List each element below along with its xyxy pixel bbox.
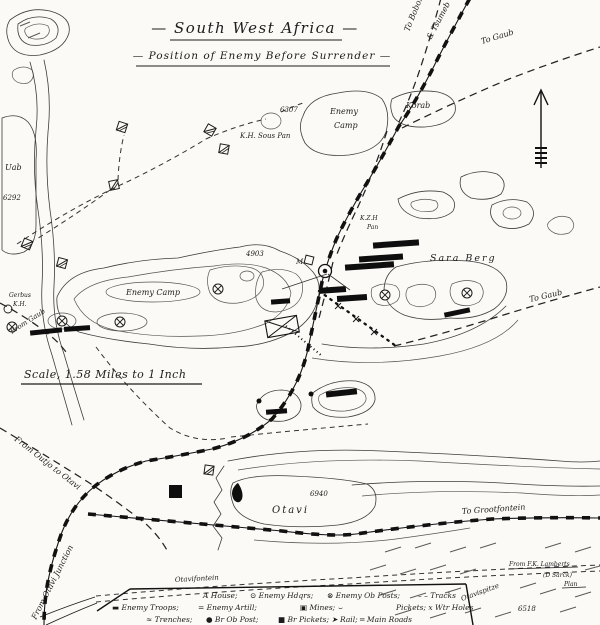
- military-symbols: [4, 121, 472, 498]
- house-icon: [56, 257, 67, 268]
- route-from-outjo: From Outjo to Otavi: [12, 434, 83, 492]
- route-tsumeb: & Tsumeb: [425, 0, 452, 41]
- credit-line2: (D Sarck): [543, 572, 573, 579]
- label-elev-6518: 6518: [518, 605, 536, 613]
- label-sous-pan: K.H. Sous Pan: [239, 132, 291, 140]
- label-enemy-camp-n2: Camp: [334, 121, 358, 130]
- enemy-obpost-icon: [213, 284, 223, 294]
- scale-note: Scale, 1.58 Miles to 1 Inch: [24, 368, 186, 381]
- legend-mines: ▣ Mines; ⌣: [300, 603, 344, 612]
- label-enemy-camp-n1: Enemy: [329, 107, 358, 116]
- label-uab: Uab: [5, 163, 22, 172]
- label-elev-6307: 6307: [280, 106, 298, 114]
- railway-lines: [44, 0, 600, 625]
- legend-pickets: Pickets; x Wtr Holes: [395, 603, 474, 612]
- enemy-obpost-icon: [380, 290, 390, 300]
- legend-enemy-troops: ▬ Enemy Troops;: [112, 603, 179, 612]
- map-subtitle: — Position of Enemy Before Surrender —: [133, 50, 391, 62]
- enemy-obpost-icon: [115, 317, 125, 327]
- legend-tracks: – – Tracks: [418, 591, 456, 600]
- enemy-hq-symbol: [282, 265, 350, 291]
- label-gerbus: Gerbus: [9, 292, 31, 299]
- legend-enemy-hdqrs: ⊙ Enemy Hdqrs;: [250, 591, 314, 600]
- enemy-obpost-icon: [462, 288, 472, 298]
- legend-row1: A House; ⊙ Enemy Hdqrs; ⊗ Enemy Ob Posts…: [202, 591, 456, 600]
- house-icon: [204, 124, 216, 136]
- house-icon: [116, 121, 127, 132]
- label-sara-berg: Sara Berg: [430, 253, 497, 264]
- route-to-gaub-e: To Gaub: [528, 288, 563, 304]
- map-canvas: — South West Africa — — Position of Enem…: [0, 0, 600, 625]
- route-to-bobos: To Bobos: [403, 0, 425, 33]
- label-otavi: Otavi: [272, 505, 309, 516]
- legend-enemy-artill: = Enemy Artill;: [198, 603, 257, 612]
- house-icon: [204, 465, 214, 475]
- artillery-box: [265, 315, 299, 337]
- legend-house: A House;: [202, 591, 238, 600]
- label-kzh: K.Z.H: [359, 215, 378, 222]
- map-page: — South West Africa — — Position of Enem…: [0, 0, 600, 625]
- house-icon: [21, 238, 33, 250]
- route-from-otavi-junction: From Otavi Junction: [29, 544, 75, 622]
- label-elev-4903: 4903: [245, 250, 264, 258]
- label-enemy-camp-central: Enemy Camp: [125, 288, 180, 297]
- label-m-marker: M: [295, 258, 304, 266]
- label-elev-6940: 6940: [310, 490, 328, 498]
- label-otavifontein: Otavifontein: [175, 574, 220, 584]
- legend-br-ob-post: ● Br Ob Post;: [206, 615, 259, 624]
- route-to-grootfontein: To Grootfontein: [462, 503, 526, 516]
- label-gerbus-kh: K.H.: [12, 301, 27, 308]
- enemy-obpost-icon: [57, 316, 67, 326]
- credit-line3: Plan: [563, 581, 578, 588]
- mine-marker: [304, 255, 314, 265]
- map-title: — South West Africa —: [151, 19, 358, 37]
- legend-enemy-ob-posts: ⊗ Enemy Ob Posts;: [327, 591, 400, 600]
- legend-trenches: ≈ Trenches;: [146, 615, 193, 624]
- house-icon: [219, 144, 229, 154]
- br-picket-square: [169, 485, 182, 498]
- route-to-gaub-ne: To Gaub: [480, 28, 515, 46]
- legend-br-pickets: ■ Br Pickets; ➤ Rail; ═ Main Roads: [278, 615, 412, 624]
- legend-row2: ▬ Enemy Troops; = Enemy Artill; ▣ Mines;…: [112, 603, 474, 612]
- legend-row3: ≈ Trenches; ● Br Ob Post; ■ Br Pickets; …: [146, 615, 412, 624]
- label-kzh-pan: Pan: [366, 224, 378, 231]
- north-arrow-icon: [534, 90, 548, 168]
- label-elev-6292: 6292: [3, 194, 21, 202]
- label-korab: Korab: [405, 101, 430, 110]
- credit-line1: From F.K. Lamberts: [508, 561, 570, 568]
- house-icon: [109, 180, 120, 191]
